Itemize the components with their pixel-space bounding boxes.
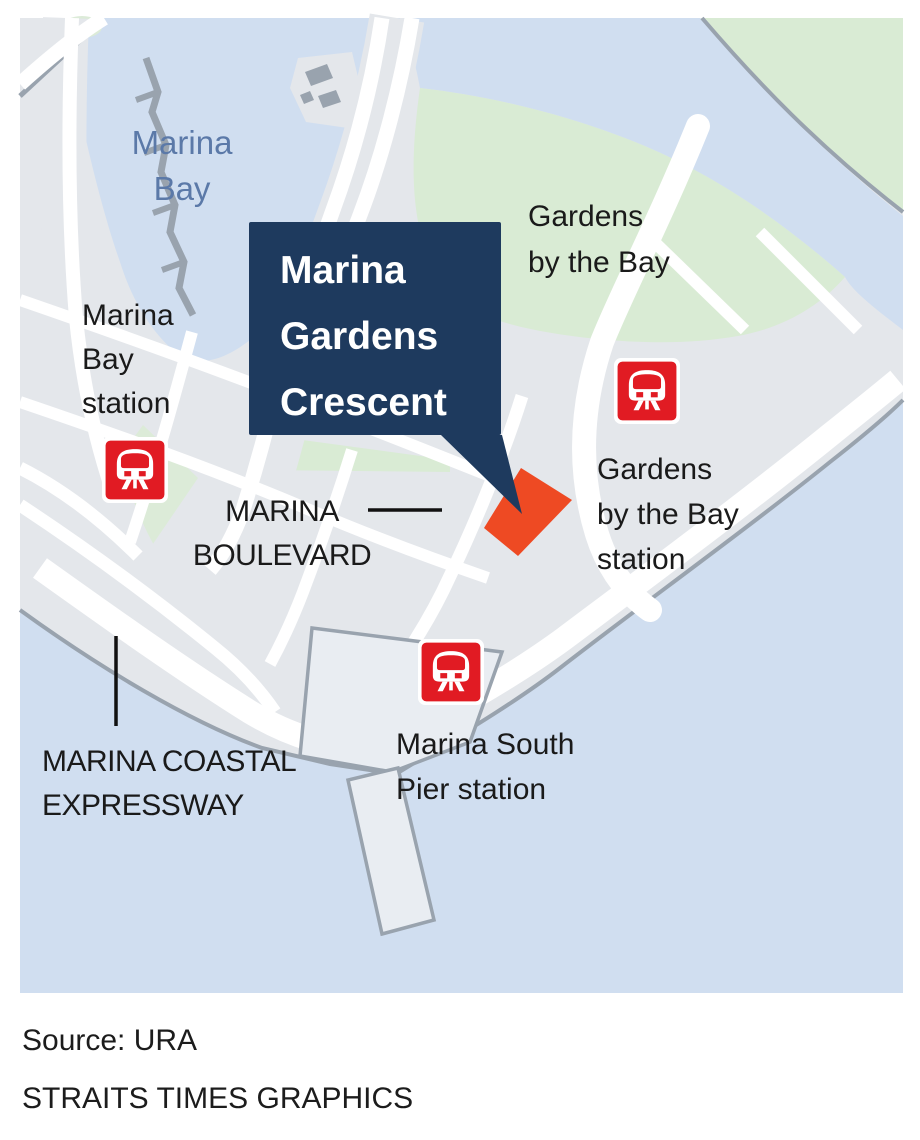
news-map-graphic: Marina Bay Marina Bay station Gardens by… (0, 0, 920, 1140)
label-line: Gardens (528, 194, 670, 240)
label-line: Gardens (597, 447, 739, 492)
callout-title: Marina Gardens Crescent (280, 238, 447, 436)
label-marina-bay-station: Marina Bay station (82, 294, 174, 426)
callout-title-line: Crescent (280, 370, 447, 436)
label-line: Marina (112, 120, 252, 166)
mrt-train-icon-gardens-by-the-bay (614, 358, 680, 424)
label-line: EXPRESSWAY (42, 784, 296, 828)
label-line: MARINA COASTAL (42, 740, 296, 784)
source-credit: Source: URA (22, 1024, 197, 1058)
label-gardens-by-the-bay-station: Gardens by the Bay station (597, 447, 739, 582)
label-line: Marina (82, 294, 174, 338)
label-line: station (597, 537, 739, 582)
callout-title-line: Gardens (280, 304, 447, 370)
mrt-train-icon-marina-south-pier (418, 639, 484, 705)
label-line: MARINA (172, 490, 392, 534)
label-line: Marina South (396, 722, 574, 767)
label-gardens-by-the-bay: Gardens by the Bay (528, 194, 670, 286)
label-line: Bay (112, 166, 252, 212)
label-line: station (82, 382, 174, 426)
label-marina-south-pier-station: Marina South Pier station (396, 722, 574, 812)
label-line: BOULEVARD (172, 534, 392, 578)
label-line: by the Bay (528, 240, 670, 286)
callout-title-line: Marina (280, 238, 447, 304)
label-line: Pier station (396, 767, 574, 812)
graphics-credit: STRAITS TIMES GRAPHICS (22, 1082, 413, 1116)
label-marina-coastal-expressway: MARINA COASTAL EXPRESSWAY (42, 740, 296, 828)
label-marina-bay: Marina Bay (112, 120, 252, 212)
mrt-train-icon-marina-bay (102, 437, 168, 503)
label-marina-boulevard: MARINA BOULEVARD (172, 490, 392, 578)
label-line: by the Bay (597, 492, 739, 537)
label-line: Bay (82, 338, 174, 382)
